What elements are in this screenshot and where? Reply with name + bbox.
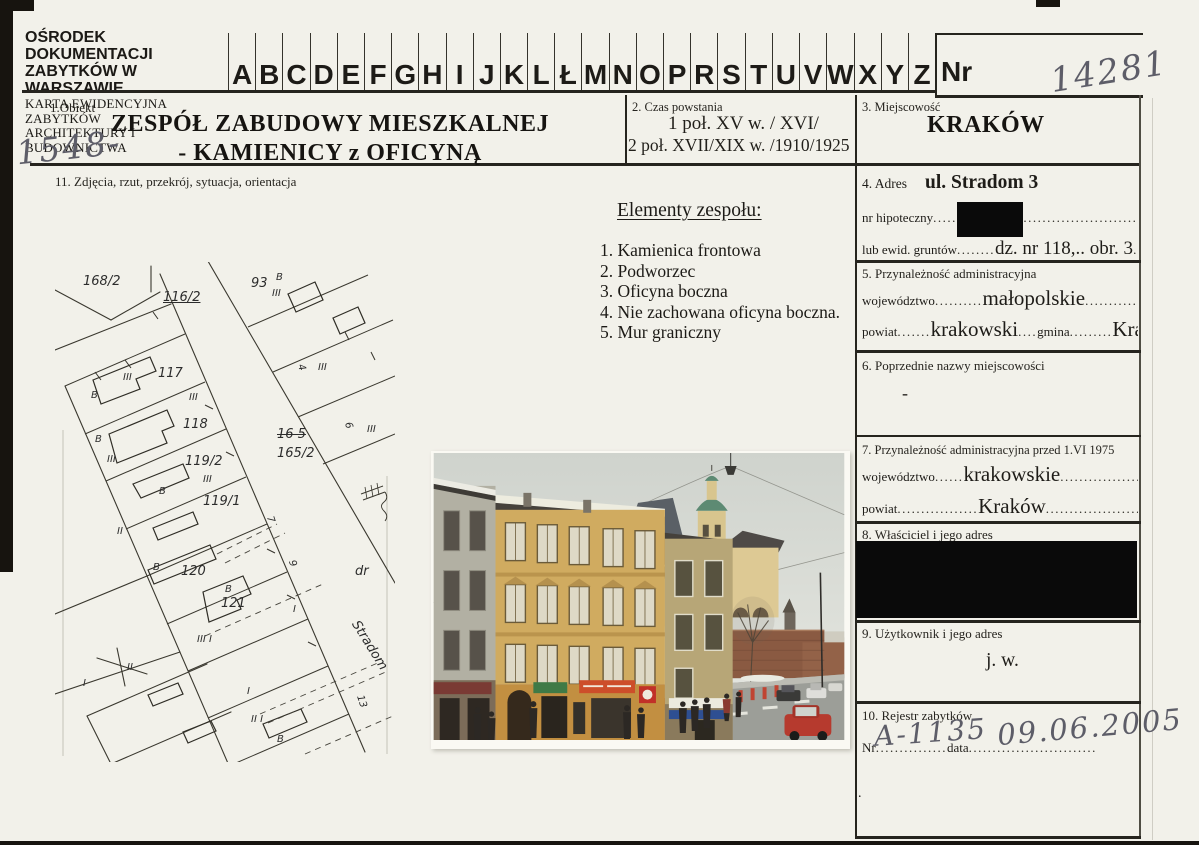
- alphabet-letter-V: V: [799, 33, 826, 91]
- county-commune-row: powiat.......krakowski....gmina.........…: [862, 317, 1138, 342]
- divider-s1-s2: [625, 95, 627, 163]
- alphabet-letter-U: U: [772, 33, 799, 91]
- object-title-line1: ZESPÓŁ ZABUDOWY MIESZKALNEJ: [60, 110, 600, 139]
- voivodeship-1975-row: województwo......krakowskie.............…: [862, 462, 1138, 487]
- dotted-leader: ......: [935, 469, 964, 485]
- dating-line1: 1 poł. XV w. / XVI/: [668, 113, 819, 135]
- map-plot-label: I: [247, 686, 250, 697]
- voivodeship-label: województwo: [862, 293, 935, 309]
- divider-s5-s6: [855, 350, 1141, 353]
- map-plot-label: B: [91, 390, 98, 401]
- alphabet-letter-P: P: [663, 33, 690, 91]
- nr-box-label: Nr: [941, 56, 972, 88]
- right-column-left-border: [855, 95, 857, 839]
- alphabet-letter-R: R: [690, 33, 717, 91]
- object-title-line2: - KAMIENICY z OFICYNĄ: [60, 139, 600, 168]
- divider-s4-s5: [855, 260, 1141, 263]
- map-plot-label: III: [123, 372, 132, 383]
- elements-item: 5. Mur graniczny: [600, 322, 840, 343]
- map-plot-label: III: [189, 392, 198, 403]
- alphabet-letter-Z: Z: [908, 33, 935, 91]
- alphabet-letter-B: B: [255, 33, 282, 91]
- commune-label: gmina: [1037, 324, 1070, 340]
- dotted-leader: ...........................: [1046, 501, 1138, 517]
- photo-green-shop-sign: [533, 682, 567, 693]
- map-plot-label: III: [367, 424, 376, 435]
- divider-s7-s8: [855, 521, 1141, 524]
- nr-box-bottom-border: [935, 95, 1143, 98]
- map-plot-label: 165/2: [277, 446, 314, 461]
- alphabet-letter-K: K: [500, 33, 527, 91]
- map-plot-label: 117: [158, 366, 183, 381]
- voivodeship-value: małopolskie: [982, 286, 1085, 311]
- alphabet-letter-N: N: [609, 33, 636, 91]
- map-plot-label: 120: [181, 564, 206, 579]
- section5-label: 5. Przynależność administracyjna: [862, 266, 1036, 282]
- section6-label: 6. Poprzednie nazwy miejscowości: [862, 358, 1045, 374]
- street-photo: [431, 451, 850, 749]
- alphabet-letter-H: H: [418, 33, 445, 91]
- scan-edge-bottom: [0, 841, 1199, 845]
- county-value: krakowski: [931, 317, 1019, 342]
- map-plot-label: III: [318, 362, 327, 373]
- section9-label: 9. Użytkownik i jego adres: [862, 626, 1002, 642]
- elements-item: 2. Podworzec: [600, 261, 840, 282]
- map-plot-label: I: [83, 678, 86, 689]
- map-plot-label: B: [159, 486, 166, 497]
- address-head-row: 4. Adres ul. Stradom 3: [862, 172, 1038, 194]
- scan-edge-topright: [1036, 0, 1060, 7]
- map-plot-label: dr: [355, 564, 369, 579]
- dotted-leader: .........: [1070, 324, 1113, 340]
- map-plot-label: II: [127, 662, 133, 673]
- photo-tan-building: [665, 533, 733, 740]
- voivodeship-row: województwo..........małopolskie........…: [862, 286, 1138, 311]
- photo-yellow-building: [496, 493, 665, 740]
- map-plot-label: III: [107, 454, 116, 465]
- alphabet-letter-C: C: [282, 33, 309, 91]
- alphabet-letter-S: S: [717, 33, 744, 91]
- map-plot-label: 168/2: [83, 274, 120, 289]
- map-plot-label: II I: [251, 714, 263, 725]
- map-hatched-building: [361, 483, 387, 521]
- elements-item: 3. Oficyna boczna: [600, 281, 840, 302]
- map-plot-label: II: [117, 526, 123, 537]
- map-plot-label: B: [277, 734, 284, 745]
- alphabet-letter-M: M: [581, 33, 608, 91]
- alphabet-letter-X: X: [854, 33, 881, 91]
- map-building-footprints: [93, 282, 365, 743]
- alphabet-letter-D: D: [310, 33, 337, 91]
- right-column-bottom-border: [855, 836, 1141, 839]
- elements-heading: Elementy zespołu:: [617, 200, 762, 222]
- mortgage-number-label: nr hipoteczny: [862, 210, 933, 226]
- commune-value: Kraków: [1112, 317, 1138, 342]
- alphabet-letter-A: A: [228, 33, 255, 91]
- street-photo-scene: [433, 453, 845, 740]
- scan-edge-topleft: [0, 0, 34, 11]
- dotted-leader: ..........: [935, 293, 983, 309]
- alphabet-letter-F: F: [364, 33, 391, 91]
- section4-label: 4. Adres: [862, 176, 907, 192]
- redaction-box-owner: [856, 541, 1137, 618]
- land-register-row: lub ewid. gruntów........dz. nr 118,.. o…: [862, 238, 1138, 260]
- map-plot-label: 93: [251, 276, 268, 291]
- map-plot-label: B: [276, 272, 283, 283]
- dotted-leader: ........: [957, 242, 995, 258]
- previous-names-value: -: [902, 383, 908, 404]
- map-plot-label: III: [203, 474, 212, 485]
- elements-item: 4. Nie zachowana oficyna boczna.: [600, 302, 840, 323]
- address-value: ul. Stradom 3: [925, 172, 1038, 194]
- register-footnote-dot: .: [858, 786, 862, 802]
- dotted-leader: .................: [897, 501, 978, 517]
- map-street-lines: [55, 262, 395, 762]
- county-1975-value: Kraków: [978, 494, 1046, 519]
- map-plot-label: B: [95, 434, 102, 445]
- alphabet-letter-W: W: [826, 33, 853, 91]
- dating-line2: 2 poł. XVII/XIX w. /1910/1925: [628, 135, 849, 156]
- divider-s6-s7: [855, 435, 1141, 437]
- map-plot-label: III I: [197, 634, 212, 645]
- map-plot-label: 121: [221, 596, 246, 611]
- alphabet-letter-L: L: [527, 33, 554, 91]
- land-register-value: dz. nr 118,.. obr. 3: [995, 238, 1133, 260]
- map-plot-label: III: [272, 288, 281, 299]
- county-1975-label: powiat: [862, 501, 897, 517]
- map-plot-label: I: [293, 604, 296, 615]
- handwritten-card-number: 14281: [1048, 43, 1171, 101]
- dotted-leader: .......: [897, 324, 930, 340]
- dotted-leader: ....: [1018, 324, 1037, 340]
- object-title: ZESPÓŁ ZABUDOWY MIESZKALNEJ - KAMIENICY …: [60, 110, 600, 168]
- alphabet-letter-T: T: [745, 33, 772, 91]
- locality-value: KRAKÓW: [927, 112, 1045, 139]
- map-plot-label: 118: [183, 417, 208, 432]
- redaction-box-mortgage: [957, 202, 1023, 237]
- dotted-leader: .............: [1133, 242, 1138, 258]
- divider-s9-s10: [855, 701, 1141, 704]
- map-plot-label: B: [225, 584, 232, 595]
- alphabet-letter-E: E: [337, 33, 364, 91]
- nr-box-top-border: [935, 33, 1143, 35]
- voivodeship-1975-value: krakowskie: [963, 462, 1060, 487]
- user-value: j. w.: [986, 650, 1019, 672]
- photo-gray-building: [434, 478, 496, 740]
- photo-arched-doorway: [507, 690, 531, 740]
- alphabet-letter-G: G: [391, 33, 418, 91]
- alphabet-letter-Ł: Ł: [554, 33, 581, 91]
- site-plan-drawing: [55, 262, 395, 762]
- header-bottom-border: [22, 90, 935, 93]
- nr-box-left-border: [935, 33, 937, 95]
- county-label: powiat: [862, 324, 897, 340]
- section7-label: 7. Przynależność administracyjna przed 1…: [862, 443, 1114, 458]
- alphabet-letter-J: J: [473, 33, 500, 91]
- site-plan-map: 168/2116/293BIII117IIIBIII118BIII16 5165…: [55, 262, 395, 762]
- institution-name-line1: OŚRODEK DOKUMENTACJI: [25, 29, 229, 63]
- elements-list: 1. Kamienica frontowa2. Podworzec3. Ofic…: [600, 240, 840, 343]
- alphabet-row: ABCDEFGHIJKLŁMNOPRSTUVWXYZ: [228, 33, 935, 91]
- dotted-leader: ......................: [1085, 293, 1138, 309]
- heritage-record-card: OŚRODEK DOKUMENTACJI ZABYTKÓW W WARSZAWI…: [0, 0, 1199, 845]
- scan-edge-left: [0, 0, 13, 572]
- map-plot-label: B: [153, 562, 160, 573]
- map-plot-label: 119/1: [203, 494, 240, 509]
- land-register-label: lub ewid. gruntów: [862, 242, 957, 258]
- divider-s8-s9: [855, 620, 1141, 623]
- voivodeship-1975-label: województwo: [862, 469, 935, 485]
- alphabet-letter-I: I: [446, 33, 473, 91]
- map-plot-label: 16 5: [277, 427, 306, 442]
- section11-label: 11. Zdjęcia, rzut, przekrój, sytuacja, o…: [55, 174, 296, 190]
- alphabet-letter-Y: Y: [881, 33, 908, 91]
- alphabet-letter-O: O: [636, 33, 663, 91]
- map-plot-dividers: [65, 275, 395, 762]
- map-plot-label: 119/2: [185, 454, 222, 469]
- map-plot-label: 116/2: [163, 290, 200, 305]
- county-1975-row: powiat.................Kraków...........…: [862, 494, 1138, 519]
- dotted-leader: .........................: [1060, 469, 1138, 485]
- elements-item: 1. Kamienica frontowa: [600, 240, 840, 261]
